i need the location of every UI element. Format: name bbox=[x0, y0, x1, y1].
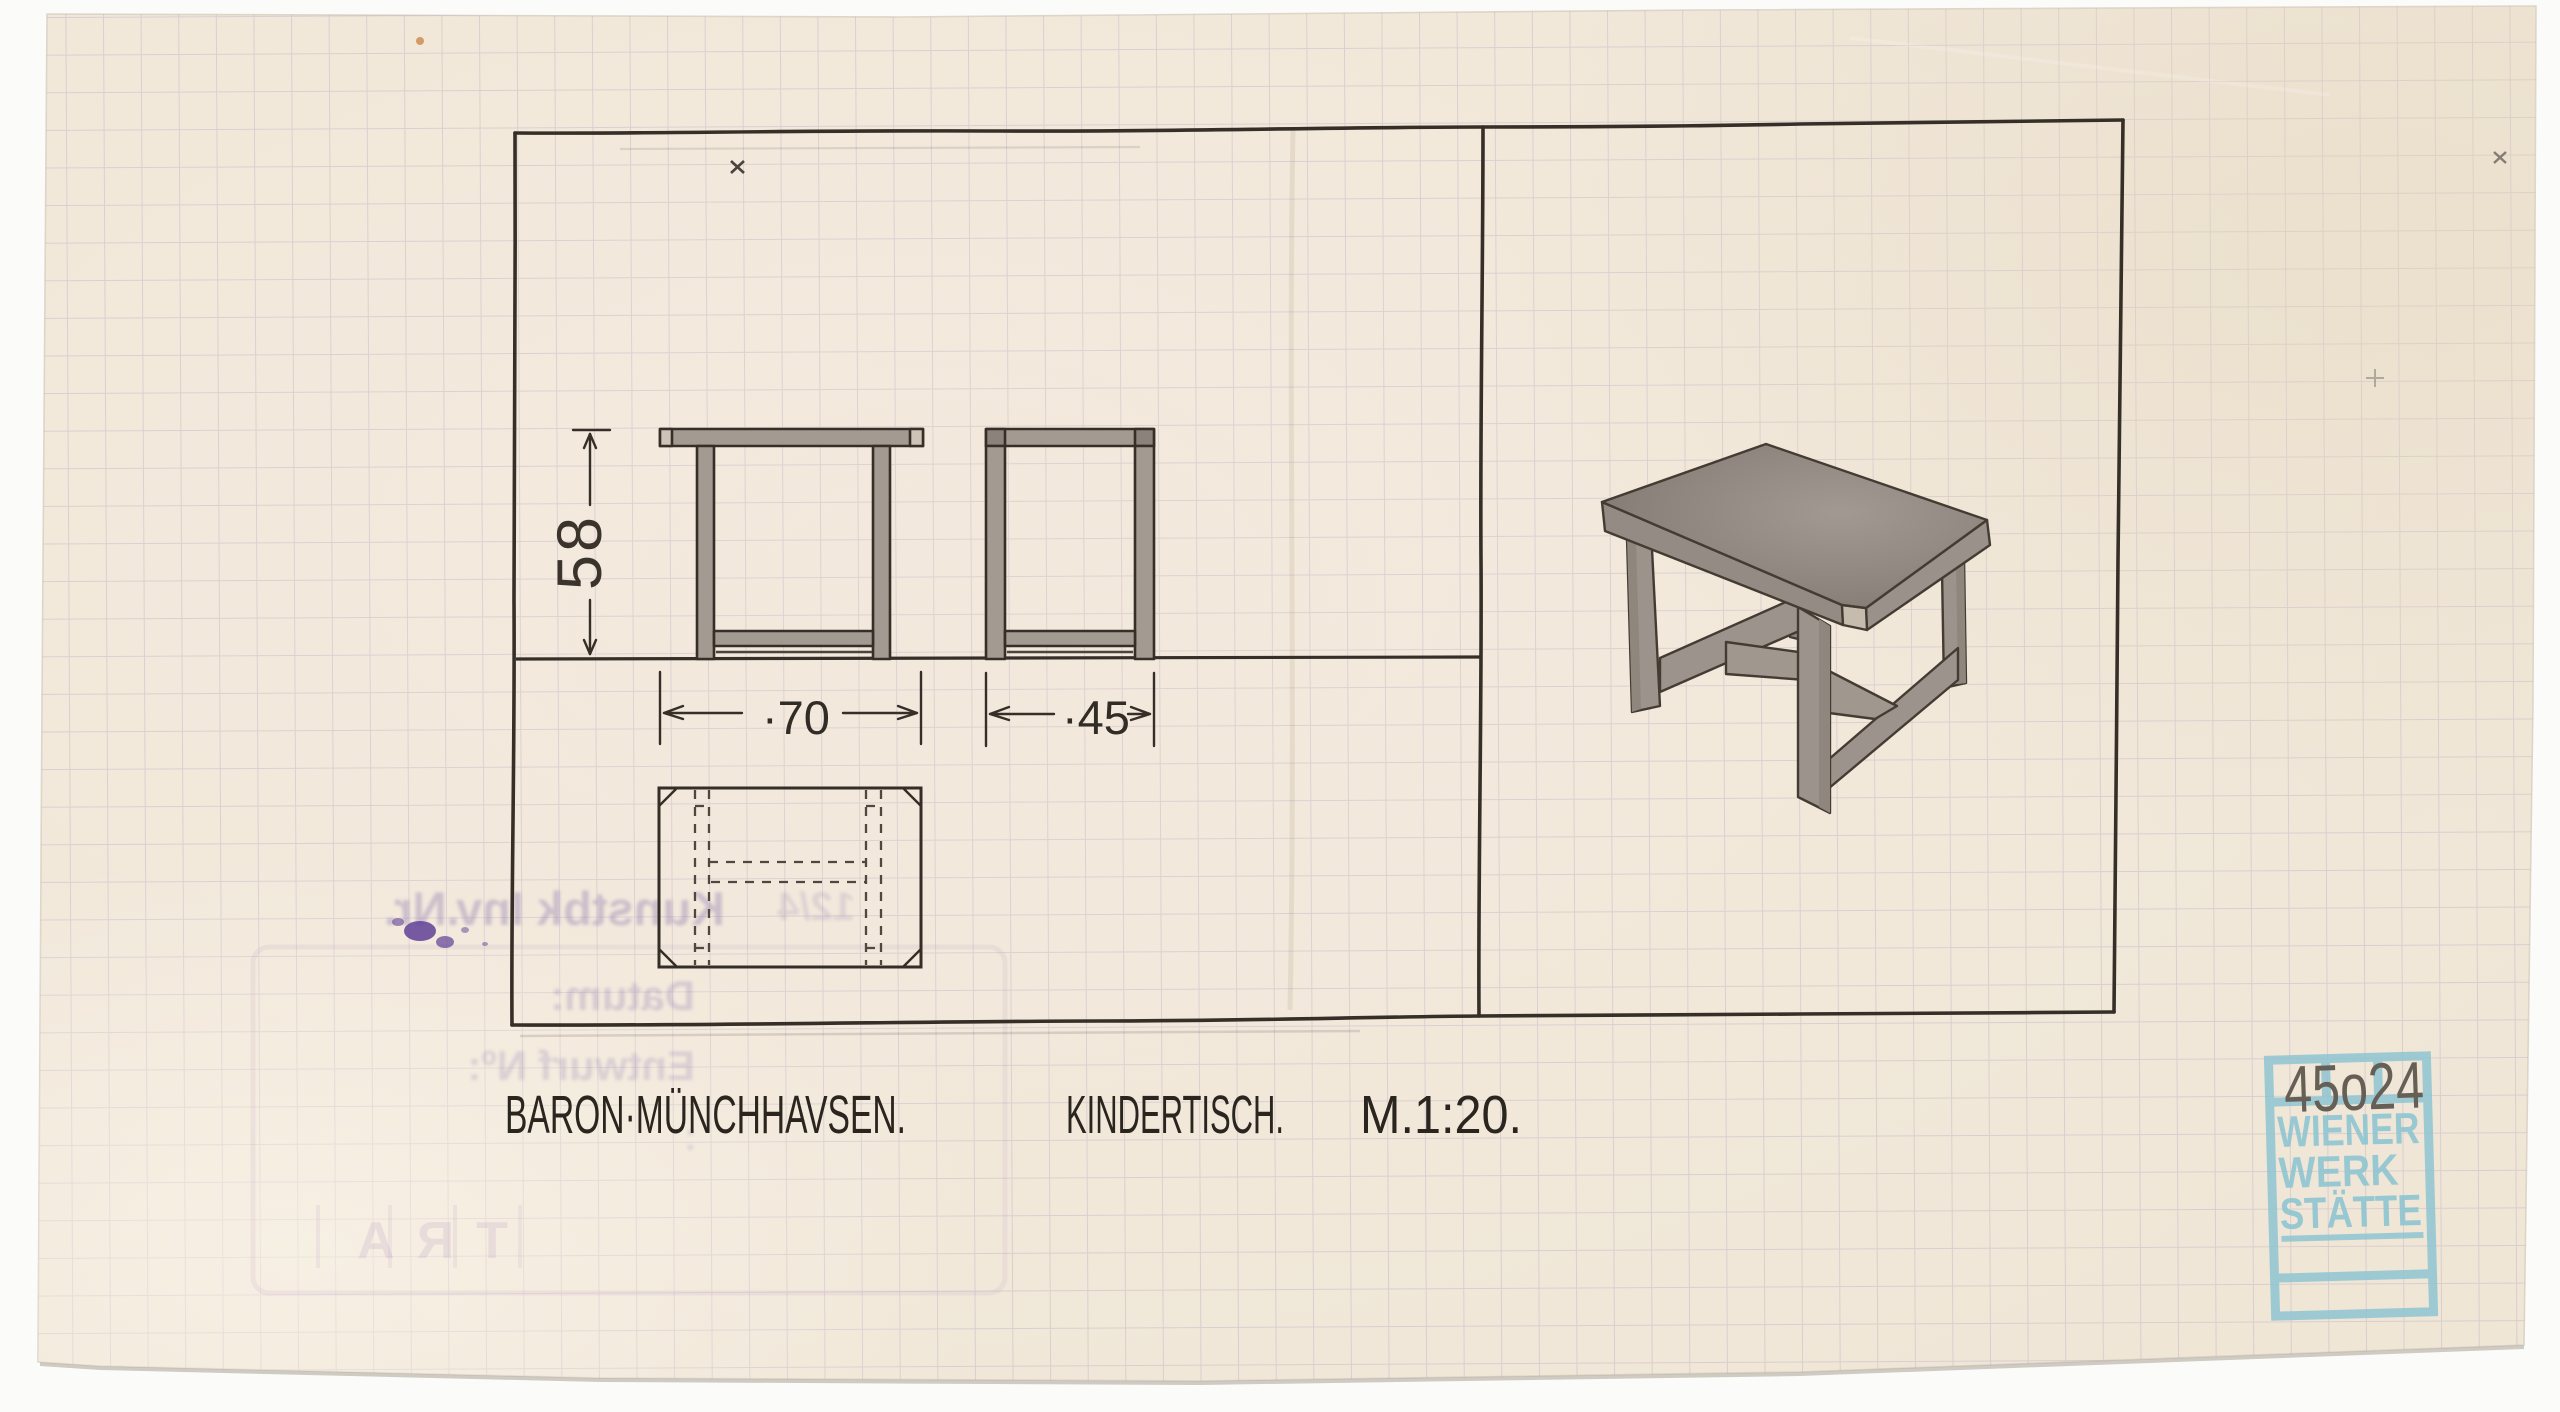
svg-text:BARON·MÜNCHHAVSEN.: BARON·MÜNCHHAVSEN. bbox=[505, 1085, 906, 1145]
svg-text:45o24: 45o24 bbox=[2283, 1047, 2425, 1126]
svg-text:58: 58 bbox=[545, 514, 615, 590]
svg-text:·45: ·45 bbox=[1062, 691, 1130, 744]
svg-text:Kunstbk Inv.Nr.: Kunstbk Inv.Nr. bbox=[384, 882, 725, 935]
svg-text:Datum:: Datum: bbox=[550, 972, 695, 1019]
svg-text:TRA: TRA bbox=[335, 1212, 508, 1270]
svg-text:KINDERTISCH.: KINDERTISCH. bbox=[1066, 1085, 1284, 1145]
svg-text:·70: ·70 bbox=[762, 691, 830, 744]
svg-text:M.1:20.: M.1:20. bbox=[1360, 1085, 1522, 1145]
svg-text:STÄTTE: STÄTTE bbox=[2279, 1186, 2422, 1239]
svg-text:12/4: 12/4 bbox=[776, 885, 855, 929]
svg-text:Entwurf Nº:: Entwurf Nº: bbox=[467, 1042, 695, 1089]
